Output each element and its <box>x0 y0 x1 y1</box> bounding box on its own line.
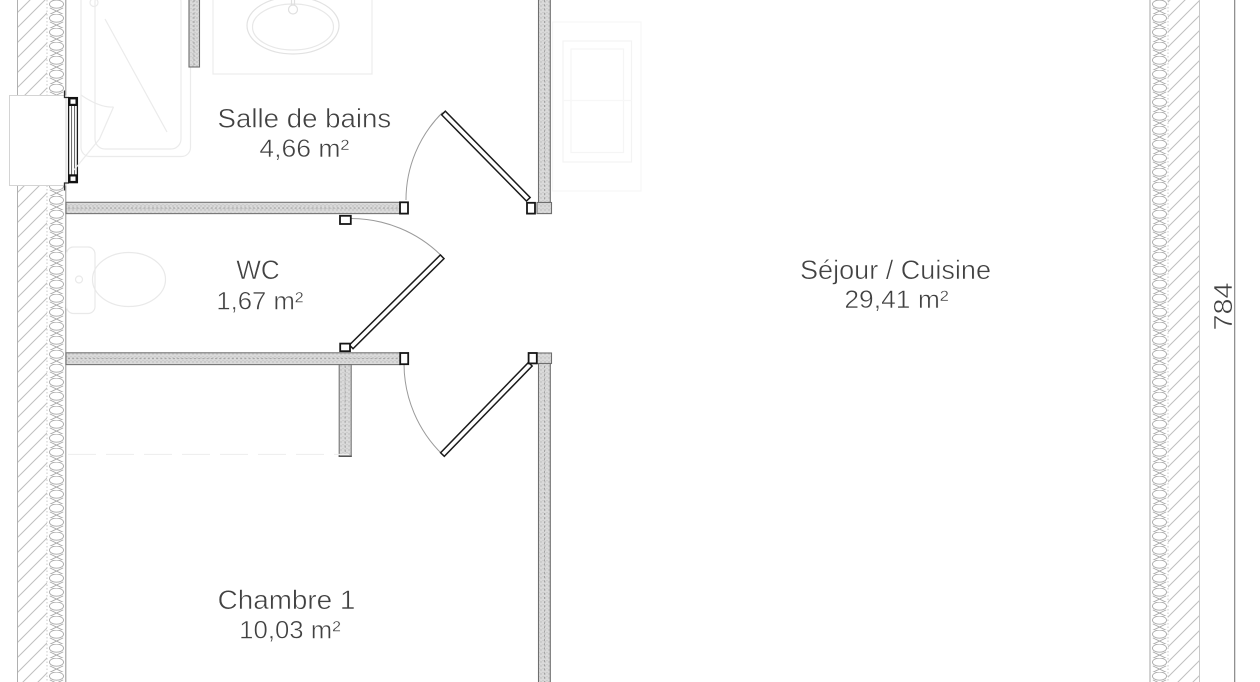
svg-text:4,66 m²: 4,66 m² <box>259 135 349 163</box>
svg-text:1,67 m²: 1,67 m² <box>216 288 303 316</box>
svg-text:Chambre 1: Chambre 1 <box>218 585 356 615</box>
svg-text:784: 784 <box>1208 283 1238 331</box>
svg-text:10,03 m²: 10,03 m² <box>239 616 341 644</box>
svg-text:29,41 m²: 29,41 m² <box>844 286 948 314</box>
svg-text:Séjour / Cuisine: Séjour / Cuisine <box>800 255 991 285</box>
svg-text:Salle de bains: Salle de bains <box>218 104 392 134</box>
svg-text:WC: WC <box>236 255 280 285</box>
